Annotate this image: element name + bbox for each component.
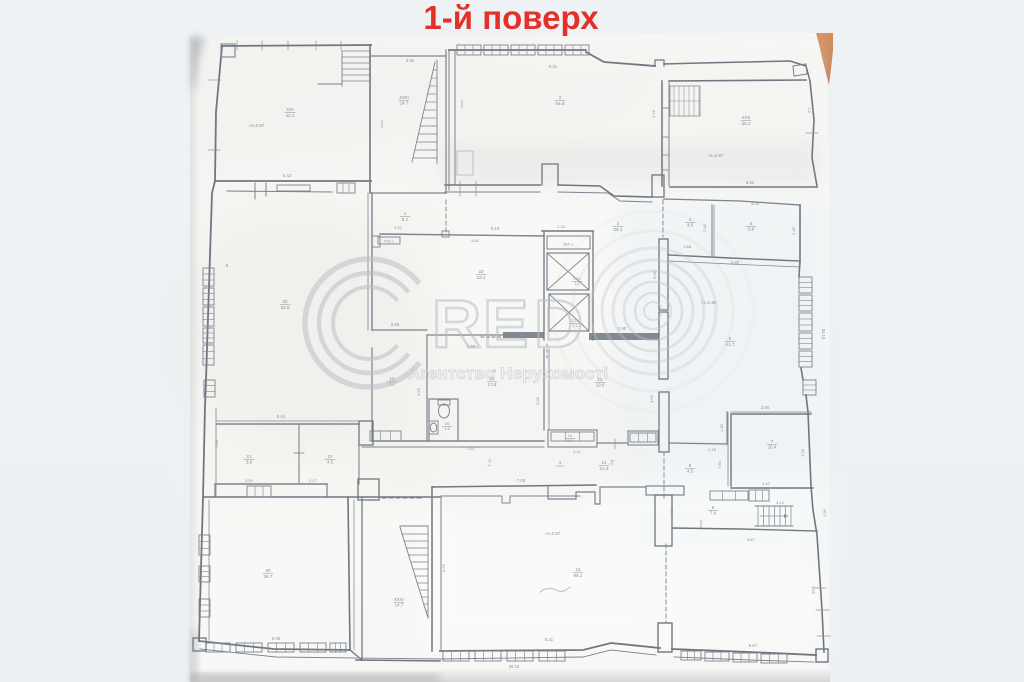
svg-text:22: 22	[478, 269, 484, 274]
svg-text:6.67: 6.67	[749, 643, 758, 648]
svg-text:1.03: 1.03	[823, 510, 827, 517]
svg-text:7.4: 7.4	[710, 511, 717, 516]
svg-text:6.87: 6.87	[747, 537, 756, 542]
svg-text:2.11: 2.11	[573, 449, 581, 454]
svg-text:36.7: 36.7	[264, 574, 273, 579]
svg-text:2.17: 2.17	[309, 478, 318, 483]
svg-text:12: 12	[575, 567, 581, 572]
svg-text:3.00: 3.00	[801, 449, 805, 456]
svg-text:3.22: 3.22	[394, 225, 403, 230]
svg-text:6.52: 6.52	[746, 180, 755, 185]
svg-text:1-й поверх: 1-й поверх	[423, 0, 599, 36]
svg-text:4.55: 4.55	[416, 387, 421, 396]
svg-text:22: 22	[282, 299, 288, 304]
svg-text:35.1: 35.1	[742, 121, 751, 126]
svg-text:1.98: 1.98	[670, 508, 674, 515]
svg-text:11: 11	[602, 460, 607, 465]
svg-text:1.68: 1.68	[683, 244, 692, 249]
svg-text:16: 16	[445, 421, 450, 426]
svg-text:25Л.1: 25Л.1	[563, 242, 574, 247]
svg-text:1.16: 1.16	[651, 109, 656, 118]
svg-text:6.31: 6.31	[545, 637, 554, 642]
svg-text:2.50: 2.50	[406, 58, 415, 63]
svg-text:2.46: 2.46	[791, 226, 796, 235]
svg-text:H=2.97: H=2.97	[546, 531, 561, 536]
svg-text:4.12: 4.12	[776, 500, 785, 505]
svg-text:4.5: 4.5	[327, 460, 334, 465]
svg-text:3.6: 3.6	[246, 460, 253, 465]
svg-text:26.10: 26.10	[509, 664, 520, 669]
svg-text:5.63: 5.63	[441, 563, 446, 572]
svg-text:9.31: 9.31	[549, 64, 558, 69]
svg-text:3.47: 3.47	[762, 481, 771, 486]
svg-text:7.60: 7.60	[717, 460, 722, 469]
svg-text:3.66: 3.66	[761, 405, 770, 410]
svg-text:5: 5	[226, 263, 229, 268]
svg-text:9.1: 9.1	[402, 217, 409, 222]
svg-text:32.8: 32.8	[281, 305, 290, 310]
svg-text:21: 21	[247, 454, 252, 459]
svg-text:2.16: 2.16	[708, 447, 717, 452]
svg-text:H=2.97: H=2.97	[250, 123, 265, 128]
svg-text:1.35: 1.35	[720, 424, 724, 431]
svg-text:Агентство Нерухомості: Агентство Нерухомості	[408, 364, 608, 383]
svg-text:2: 2	[617, 221, 620, 226]
svg-text:10: 10	[328, 454, 333, 459]
svg-text:14.7: 14.7	[395, 603, 404, 608]
svg-text:0.9: 0.9	[567, 439, 572, 443]
svg-text:4.08: 4.08	[751, 201, 760, 206]
svg-text:26.10: 26.10	[821, 329, 826, 340]
svg-text:XXIV: XXIV	[394, 597, 404, 602]
svg-text:3.65: 3.65	[649, 394, 654, 403]
svg-text:95.1: 95.1	[574, 573, 583, 578]
svg-text:4.03: 4.03	[535, 396, 540, 405]
svg-text:5.8: 5.8	[748, 227, 755, 232]
svg-text:10.8: 10.8	[596, 383, 605, 388]
svg-text:4.5: 4.5	[687, 469, 694, 474]
svg-text:XXIII: XXIII	[399, 95, 409, 100]
svg-text:2: 2	[559, 95, 562, 100]
svg-text:H=2.97: H=2.97	[709, 153, 724, 158]
svg-text:19.1: 19.1	[477, 275, 486, 280]
svg-text:3.50: 3.50	[245, 478, 254, 483]
svg-text:E: E	[483, 286, 528, 362]
svg-text:42.1: 42.1	[286, 113, 295, 118]
svg-text:XXI: XXI	[286, 107, 293, 112]
svg-text:54.8: 54.8	[556, 101, 565, 106]
svg-text:14: 14	[568, 434, 572, 438]
svg-text:7.41: 7.41	[466, 446, 475, 451]
svg-text:21.3: 21.3	[600, 466, 609, 471]
svg-text:4.55: 4.55	[811, 586, 816, 595]
svg-text:7.00: 7.00	[517, 478, 526, 483]
svg-text:4.60: 4.60	[471, 238, 480, 243]
svg-text:14.7: 14.7	[400, 101, 409, 106]
svg-text:2.33: 2.33	[557, 224, 566, 229]
svg-text:4.5: 4.5	[687, 223, 694, 228]
svg-text:1.5: 1.5	[444, 426, 450, 431]
svg-text:2.6: 2.6	[807, 107, 812, 113]
svg-text:1: 1	[404, 211, 407, 216]
svg-text:ПОЗ.1: ПОЗ.1	[384, 240, 394, 244]
svg-text:10.4: 10.4	[768, 445, 777, 450]
svg-text:20: 20	[265, 568, 271, 573]
svg-text:2.86: 2.86	[391, 322, 400, 327]
svg-text:XXII: XXII	[742, 115, 751, 120]
svg-text:26.1: 26.1	[614, 227, 623, 232]
svg-text:6.08: 6.08	[272, 636, 281, 641]
svg-text:6.42: 6.42	[283, 173, 292, 178]
svg-text:2.46: 2.46	[214, 439, 219, 448]
svg-text:8.19: 8.19	[491, 226, 500, 231]
svg-text:5.44: 5.44	[277, 414, 286, 419]
svg-text:R: R	[432, 286, 481, 362]
